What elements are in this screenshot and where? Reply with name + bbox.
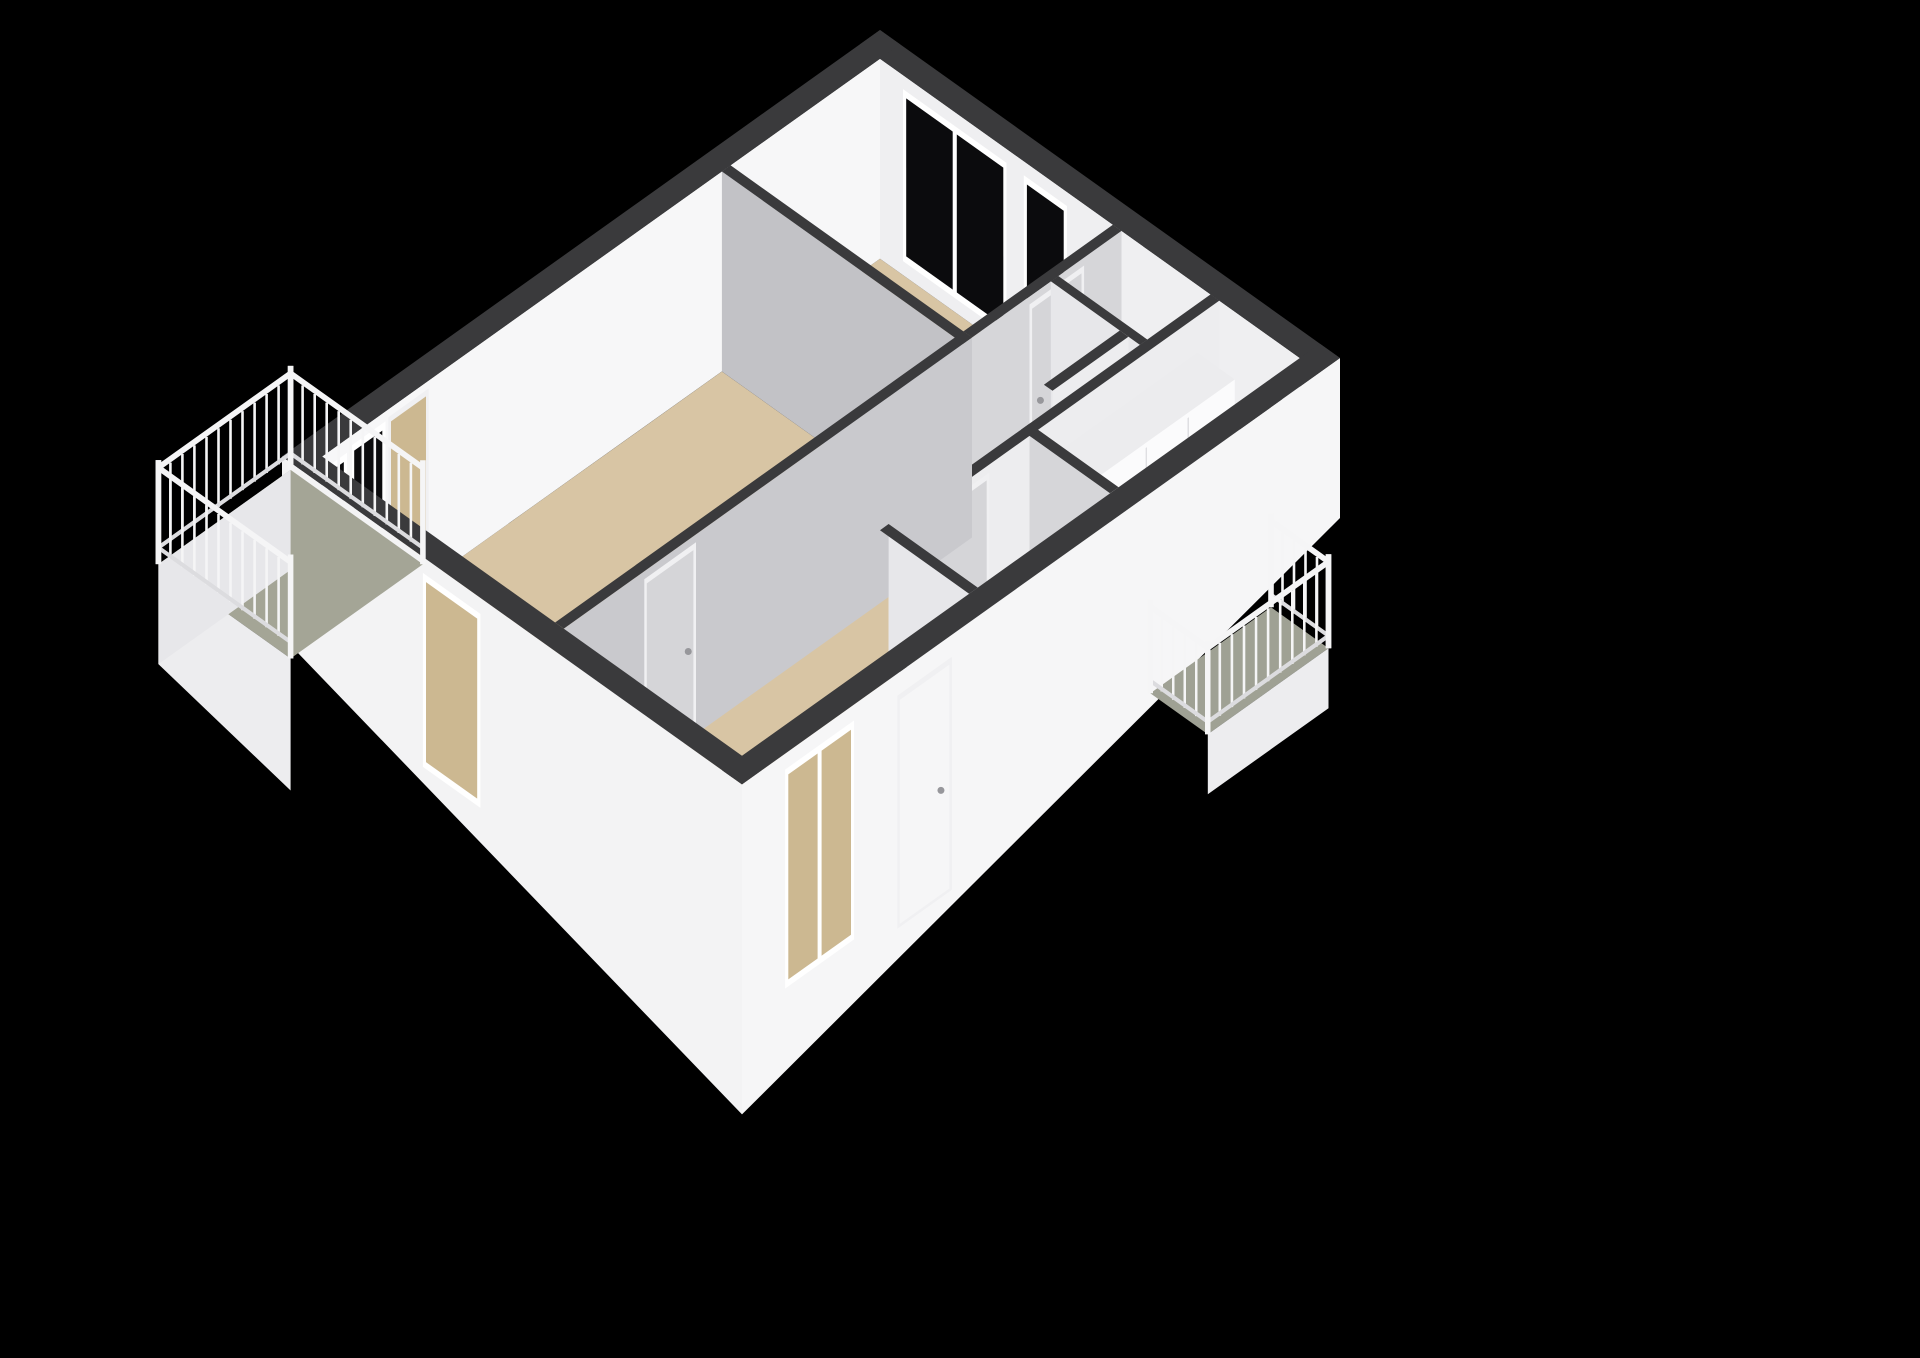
balcony-railing-north-baluster <box>313 394 316 473</box>
balcony-railing-north-baluster <box>325 403 328 482</box>
balcony-railing-south-baluster <box>229 523 232 602</box>
east-balcony-railing-east-baluster <box>1279 600 1282 673</box>
balcony-railing-west-baluster <box>217 428 220 507</box>
east-balcony-railing-east-baluster <box>1243 626 1246 699</box>
east-balcony-railing-east-baluster <box>1219 643 1222 716</box>
balcony-railing-west-post <box>288 366 294 470</box>
balcony-railing-west-baluster <box>229 420 232 499</box>
balcony-railing-west-baluster <box>253 403 256 482</box>
east-balcony-railing-east-baluster <box>1303 582 1306 655</box>
balcony-railing-north-baluster <box>301 385 304 464</box>
balcony-railing-south-post <box>288 555 294 659</box>
balcony-railing-north-baluster <box>374 437 377 516</box>
front-door-handle <box>937 787 944 794</box>
balcony-railing-west-baluster <box>277 385 280 464</box>
east-balcony-railing-south-baluster <box>1161 619 1164 692</box>
east-tall-window-mullion <box>818 750 822 960</box>
east-balcony-railing-south-baluster <box>1184 635 1187 708</box>
balcony-railing-north-baluster <box>386 445 389 524</box>
balcony-railing-south-baluster <box>169 480 172 559</box>
balcony-railing-south-baluster <box>217 514 220 593</box>
balcony-railing-south-baluster <box>253 540 256 619</box>
south-window-glass <box>426 582 477 799</box>
living-room-door-handle <box>685 648 692 655</box>
balcony-railing-south-baluster <box>265 548 268 627</box>
floorplan-3d-render <box>0 0 1920 1358</box>
east-balcony-railing-south-post <box>1205 640 1211 734</box>
balcony-railing-west-baluster <box>241 411 244 490</box>
balcony-railing-north-baluster <box>410 463 413 542</box>
balcony-railing-west-baluster <box>265 394 268 473</box>
bedroom-door-handle <box>1037 397 1044 404</box>
east-balcony-railing-south-baluster <box>1195 643 1198 716</box>
east-balcony-railing-south-baluster <box>1172 627 1175 700</box>
bedroom-window-large-mullion <box>953 131 957 294</box>
front-door-leaf <box>900 665 950 924</box>
east-balcony-railing-east-baluster <box>1255 617 1258 690</box>
balcony-railing-south-baluster <box>181 488 184 567</box>
balcony-railing-north-baluster <box>398 454 401 533</box>
east-balcony-railing-east-baluster <box>1291 591 1294 664</box>
balcony-railing-north-baluster <box>349 420 352 499</box>
east-balcony-railing-east-baluster <box>1315 574 1318 647</box>
east-balcony-railing-east-post <box>1326 554 1332 648</box>
east-balcony-railing-east-baluster <box>1267 608 1270 681</box>
balcony-railing-south-baluster <box>277 557 280 636</box>
balcony-railing-north-post <box>420 460 426 564</box>
balcony-railing-south-baluster <box>241 531 244 610</box>
east-balcony-railing-north-post <box>1268 513 1274 607</box>
balcony-railing-north-baluster <box>362 428 365 507</box>
east-balcony-railing-south-post <box>1148 599 1154 693</box>
floorplan-svg <box>0 0 1920 1358</box>
balcony-railing-north-baluster <box>337 411 340 490</box>
balcony-railing-south-post <box>156 460 162 564</box>
balcony-railing-south-baluster <box>205 505 208 584</box>
east-balcony-railing-east-baluster <box>1231 634 1234 707</box>
balcony-railing-south-baluster <box>193 497 196 576</box>
